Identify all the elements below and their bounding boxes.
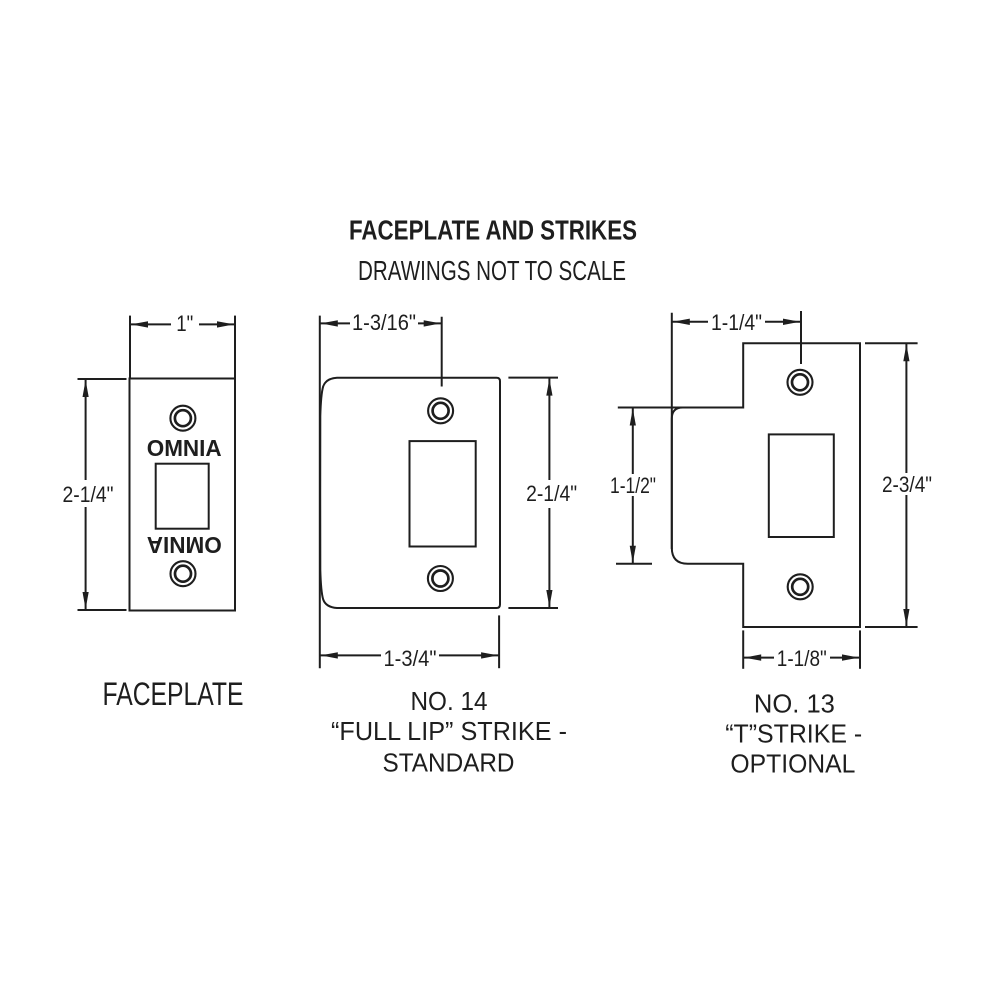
svg-text:FACEPLATE: FACEPLATE: [103, 676, 244, 712]
svg-text:DRAWINGS NOT TO SCALE: DRAWINGS NOT TO SCALE: [358, 255, 626, 286]
svg-text:FACEPLATE AND STRIKES: FACEPLATE AND STRIKES: [349, 215, 637, 246]
svg-text:NO. 13: NO. 13: [754, 689, 835, 719]
svg-text:OMNIA: OMNIA: [147, 435, 222, 461]
svg-text:2-3/4": 2-3/4": [882, 472, 932, 497]
svg-text:STANDARD: STANDARD: [383, 748, 515, 778]
svg-text:1": 1": [176, 311, 193, 336]
svg-text:1-1/2": 1-1/2": [610, 473, 656, 498]
svg-text:“T”STRIKE -: “T”STRIKE -: [725, 718, 862, 748]
svg-text:2-1/4": 2-1/4": [526, 481, 577, 506]
svg-text:1-1/8": 1-1/8": [777, 646, 827, 671]
svg-text:OPTIONAL: OPTIONAL: [730, 748, 855, 778]
svg-text:OMNIA: OMNIA: [147, 532, 222, 558]
svg-text:1-3/16": 1-3/16": [352, 310, 416, 335]
svg-text:1-1/4": 1-1/4": [711, 310, 762, 335]
svg-text:“FULL LIP” STRIKE -: “FULL LIP” STRIKE -: [331, 716, 567, 746]
svg-text:NO. 14: NO. 14: [411, 686, 488, 716]
svg-text:2-1/4": 2-1/4": [63, 482, 114, 507]
svg-text:1-3/4": 1-3/4": [384, 646, 437, 671]
